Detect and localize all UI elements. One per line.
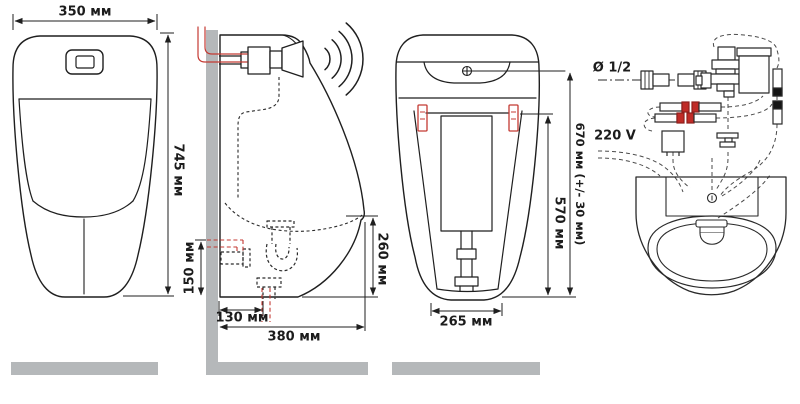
connection-tubes xyxy=(773,69,782,124)
battery-box xyxy=(739,56,769,93)
battery-box-lid xyxy=(737,48,771,56)
sensor-waves-icon xyxy=(325,23,363,95)
dim-depth-label: 380 мм xyxy=(268,330,321,345)
dim-drain-offset-label: 130 мм xyxy=(216,311,269,326)
side-outline xyxy=(220,35,364,297)
dim-bracket-height-label: 570 мм xyxy=(552,197,567,250)
cable-connectors xyxy=(655,102,721,123)
urinal-rear-view xyxy=(396,35,565,300)
dim-fixing-height-label: 670 мм (+/- 30 мм) xyxy=(573,123,587,246)
urinal-top-view xyxy=(636,177,786,295)
front-inner-left xyxy=(19,99,33,201)
rear-drain-pipe xyxy=(455,231,478,291)
mounting-brackets-red xyxy=(418,105,518,131)
front-bowl-edge xyxy=(33,201,133,217)
sensor-cone xyxy=(282,41,303,77)
rear-cistern xyxy=(441,116,492,231)
dim-front-height-label: 745 мм xyxy=(171,144,186,197)
floor-rear-view xyxy=(392,362,540,375)
rear-view-dimensions xyxy=(431,73,576,316)
solenoid-valve-unit xyxy=(696,47,771,97)
dim-underside-label: 260 мм xyxy=(375,233,390,286)
flush-nozzle xyxy=(696,220,727,244)
front-inner-right xyxy=(133,99,151,201)
sensor-eye xyxy=(76,56,94,68)
urinal-side-view xyxy=(220,35,364,297)
dim-inlet-height-label: 150 мм xyxy=(183,242,198,295)
control-box xyxy=(662,131,684,156)
diagram-page: 350 мм 745 мм 150 мм 130 мм 380 мм 260 м… xyxy=(0,0,800,404)
mounting-clamp xyxy=(717,133,738,147)
side-flush-valve xyxy=(219,41,303,77)
urinal-front-view xyxy=(13,36,157,297)
front-outline xyxy=(13,36,157,297)
floor-front-view xyxy=(11,362,158,375)
rear-inner-trapezoid xyxy=(414,111,522,292)
floor-side-view xyxy=(206,362,368,375)
dim-front-width-label: 350 мм xyxy=(59,5,112,20)
power-supply-label: 220 V xyxy=(594,129,636,144)
dim-base-width-label: 265 мм xyxy=(440,315,493,330)
side-internal-pipe-dashed xyxy=(225,77,362,231)
water-supply-label: Ø 1/2 xyxy=(593,61,631,76)
sensor-window xyxy=(66,50,103,74)
screw-symbol xyxy=(463,67,472,76)
technical-drawing xyxy=(0,0,800,404)
rear-outline xyxy=(396,35,539,300)
water-supply-red-lines xyxy=(198,27,247,62)
siphon-trap-dashed xyxy=(221,221,297,299)
